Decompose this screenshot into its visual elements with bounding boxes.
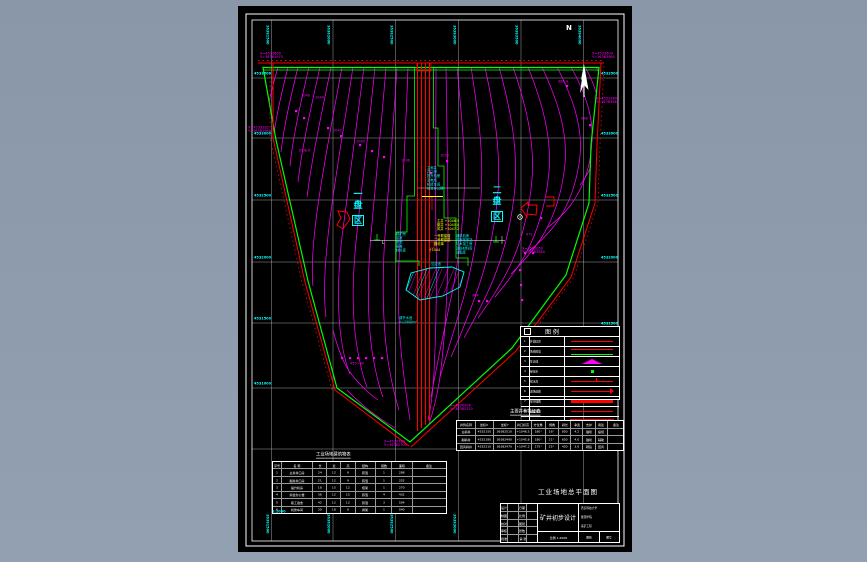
site-fence-green (374, 68, 499, 266)
drawing-graphics: L (238, 6, 632, 552)
contour-lines (266, 67, 606, 428)
cad-viewer-stage: L 45335004533000453250045320004531500453… (0, 0, 867, 562)
north-arrow-icon (580, 64, 589, 97)
site-boundary-red (258, 61, 604, 448)
section-lines (370, 188, 505, 244)
panel-direction-arrows (337, 202, 537, 229)
site-boundary-green (263, 68, 599, 443)
survey-grid (252, 20, 618, 541)
pond (398, 264, 474, 303)
